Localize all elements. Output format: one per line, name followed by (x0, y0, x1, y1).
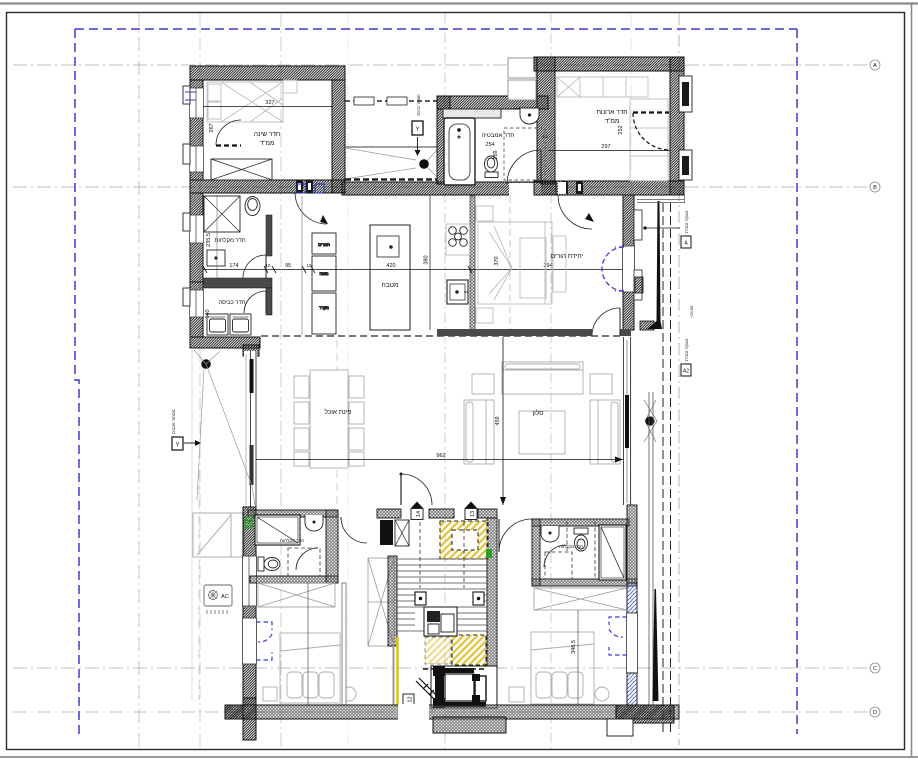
svg-text:מזווה: מזווה (319, 271, 328, 276)
svg-text:מעקה זכוכית: מעקה זכוכית (684, 339, 689, 361)
svg-text:327: 327 (265, 100, 274, 106)
svg-text:Y: Y (175, 443, 179, 449)
svg-text:פינת אוכל: פינת אוכל (325, 408, 352, 416)
svg-text:459: 459 (495, 416, 501, 425)
svg-text:ממ"ד: ממ"ד (260, 140, 275, 147)
svg-text:140: 140 (205, 309, 211, 318)
svg-text:297: 297 (601, 144, 610, 150)
svg-text:346.5: 346.5 (571, 640, 577, 654)
svg-text:174: 174 (229, 263, 238, 269)
svg-text:13: 13 (470, 511, 476, 517)
svg-text:12: 12 (408, 696, 414, 702)
svg-text:4.5: 4.5 (542, 134, 548, 139)
svg-text:סלון: סלון (532, 409, 543, 417)
svg-text:מקרר: מקרר (319, 305, 329, 310)
svg-text:מסתור מעבים: מסתור מעבים (171, 409, 176, 434)
svg-text:A: A (873, 63, 877, 69)
svg-text:יחידת הורים: יחידת הורים (551, 253, 584, 260)
svg-text:Y: Y (415, 127, 419, 133)
svg-text:10: 10 (266, 263, 271, 268)
svg-text:מעקה זכוכית: מעקה זכוכית (684, 211, 689, 233)
svg-text:מסתור כביסה: מסתור כביסה (417, 94, 421, 116)
svg-text:254: 254 (485, 142, 494, 148)
svg-text:420: 420 (386, 263, 395, 269)
svg-text:חדר ארונות: חדר ארונות (596, 109, 627, 116)
svg-text:267: 267 (209, 123, 215, 132)
svg-text:B: B (873, 185, 877, 191)
svg-text:14: 14 (416, 511, 422, 517)
svg-text:169: 169 (493, 150, 499, 159)
svg-text:10: 10 (307, 263, 312, 268)
svg-text:962: 962 (436, 453, 445, 459)
svg-text:תנורים: תנורים (318, 242, 330, 247)
svg-text:D: D (873, 710, 877, 716)
svg-text:380: 380 (424, 255, 430, 264)
svg-text:חדר שינה: חדר שינה (254, 131, 280, 138)
svg-text:AC: AC (221, 594, 229, 600)
svg-text:95: 95 (285, 263, 291, 269)
svg-text:+23.90: +23.90 (689, 305, 694, 318)
svg-text:252: 252 (618, 125, 624, 134)
svg-text:235.5: 235.5 (206, 233, 212, 247)
svg-text:370: 370 (494, 256, 500, 265)
svg-text:חדר אמבטיה: חדר אמבטיה (482, 133, 515, 139)
svg-text:C: C (873, 666, 877, 672)
svg-text:חדר מקלחות: חדר מקלחות (280, 538, 304, 543)
svg-text:חדר מקלחות: חדר מקלחות (214, 237, 246, 244)
svg-text:A2: A2 (683, 369, 689, 375)
svg-text:מטבח: מטבח (382, 282, 399, 289)
svg-text:ממ"ד: ממ"ד (605, 118, 620, 125)
svg-text:חדר מקלחות: חדר מקלחות (559, 544, 583, 549)
svg-text:חדר כביסה: חדר כביסה (218, 300, 245, 306)
